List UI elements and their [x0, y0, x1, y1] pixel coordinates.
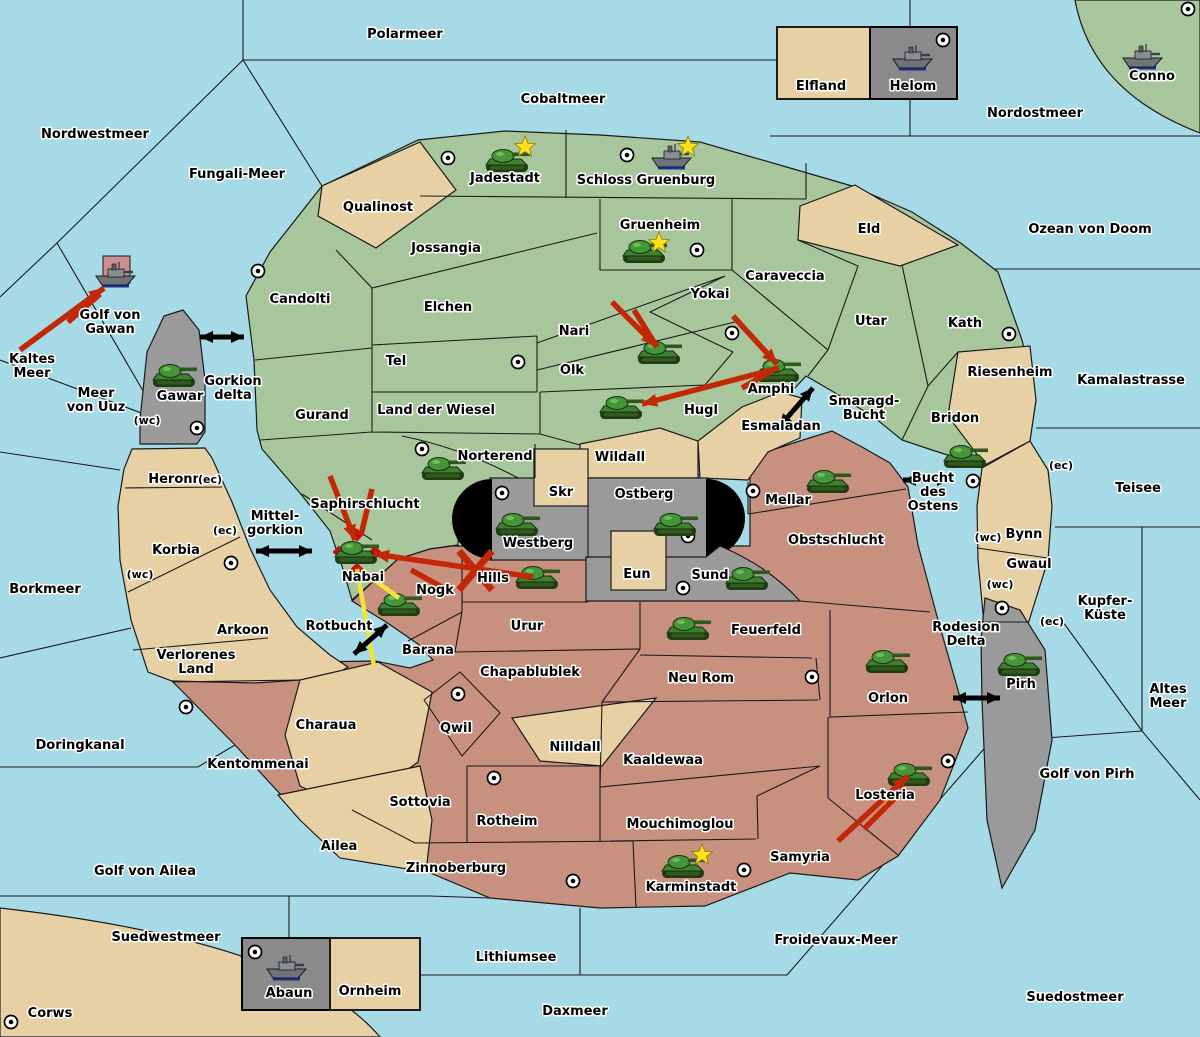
- territory-label-amphi: Amphi: [748, 382, 795, 397]
- sea-label-mittel-gorkion: Mittel-gorkion: [247, 509, 303, 538]
- territory-label-bridon: Bridon: [931, 411, 979, 426]
- territory-label-karminstadt: Karminstadt: [646, 880, 737, 895]
- sea-label-golf-von-ailea: Golf von Ailea: [94, 864, 196, 879]
- territory-label-hugl: Hugl: [684, 403, 718, 418]
- coast-marker-wc-bynn: (wc): [975, 531, 1002, 544]
- territory-label-obstschlucht: Obstschlucht: [788, 533, 884, 548]
- territory-label-orlon: Orlon: [868, 691, 908, 706]
- territory-label-samyria: Samyria: [770, 850, 830, 865]
- territory-label-hills: Hills: [477, 571, 509, 586]
- sea-label-doringkanal: Doringkanal: [35, 738, 124, 753]
- supply-center-yokai: [726, 327, 739, 340]
- territory-label-ostberg: Ostberg: [615, 487, 674, 502]
- sea-label-daxmeer: Daxmeer: [542, 1004, 608, 1019]
- supply-center-schloss-gruenburg: [621, 149, 634, 162]
- coast-marker-ec-bynn: (ec): [1049, 459, 1073, 472]
- territory-label-wildall: Wildall: [595, 450, 645, 465]
- sea-label-borkmeer: Borkmeer: [9, 582, 81, 597]
- territory-label-charaua: Charaua: [296, 718, 357, 733]
- territory-label-gruenheim: Gruenheim: [620, 218, 700, 233]
- sea-label-kamalastrasse: Kamalastrasse: [1077, 373, 1185, 388]
- territory-label-feuerfeld: Feuerfeld: [731, 623, 801, 638]
- territory-label-rotheim: Rotheim: [476, 814, 537, 829]
- territory-label-gwaul: Gwaul: [1006, 557, 1051, 572]
- territory-label-abaun: Abaun: [266, 986, 313, 1001]
- sea-label-cobaltmeer: Cobaltmeer: [521, 92, 606, 107]
- territory-label-conno: Conno: [1129, 69, 1175, 84]
- territory-label-sund: Sund: [691, 568, 728, 583]
- territory-label-nari: Nari: [559, 324, 590, 339]
- game-map: PolarmeerCobaltmeerNordostmeerNordwestme…: [0, 0, 1200, 1037]
- map-canvas: PolarmeerCobaltmeerNordostmeerNordwestme…: [0, 0, 1200, 1037]
- sea-label-froidevaux-meer: Froidevaux-Meer: [774, 933, 898, 948]
- sea-label-rotbucht: Rotbucht: [306, 619, 373, 634]
- sea-label-golf-von-pirh: Golf von Pirh: [1039, 767, 1134, 782]
- sea-label-polarmeer: Polarmeer: [367, 27, 443, 42]
- territory-label-chapablublek: Chapablublek: [480, 665, 580, 680]
- sea-label-kaltes-meer: KaltesMeer: [9, 352, 55, 381]
- territory-label-riesenheim: Riesenheim: [967, 365, 1052, 380]
- territory-label-ailea: Ailea: [321, 839, 358, 854]
- supply-center-abaun: [249, 946, 262, 959]
- supply-center-gruenheim: [691, 244, 704, 257]
- territory-label-sottovia: Sottovia: [389, 795, 450, 810]
- territory-label-kaaldewaa: Kaaldewaa: [623, 753, 703, 768]
- supply-center-sund: [677, 582, 690, 595]
- territory-label-schloss-gruenburg: Schloss Gruenburg: [577, 173, 715, 188]
- coast-marker-ec-gwaul: (ec): [1040, 615, 1064, 628]
- territory-label-kentommenai: Kentommenai: [207, 757, 308, 772]
- territory-label-qwil: Qwil: [440, 721, 472, 736]
- territory-label-kath: Kath: [948, 316, 982, 331]
- supply-center-pirh: [996, 602, 1009, 615]
- sea-label-golf-von-gawan: Golf vonGawan: [80, 308, 141, 337]
- supply-center-mellar: [747, 485, 760, 498]
- territory-label-nilldall: Nilldall: [549, 740, 600, 755]
- supply-center-westberg: [496, 487, 509, 500]
- supply-center-gawar: [191, 422, 204, 435]
- territory-label-jadestadt: Jadestadt: [469, 171, 540, 186]
- supply-center-jadestadt: [442, 152, 455, 165]
- territory-label-nogk: Nogk: [416, 583, 454, 598]
- coast-marker-ec-korbia: (ec): [213, 524, 237, 537]
- territory-label-elchen: Elchen: [424, 300, 472, 315]
- territory-label-candolti: Candolti: [270, 292, 331, 307]
- coast-marker-wc-korbia: (wc): [127, 568, 154, 581]
- supply-center-kath: [1003, 328, 1016, 341]
- supply-center-rotheim: [488, 772, 501, 785]
- supply-center-norterend: [416, 443, 429, 456]
- territory-label-bynn: Bynn: [1006, 527, 1043, 542]
- supply-center-corws: [5, 1016, 18, 1029]
- territory-label-gawar: Gawar: [157, 389, 204, 404]
- territory-label-barana: Barana: [402, 643, 454, 658]
- territory-label-helom: Helom: [890, 79, 937, 94]
- territory-label-gurand: Gurand: [295, 408, 349, 423]
- sea-label-nordostmeer: Nordostmeer: [987, 106, 1084, 121]
- territory-label-heronn: Heronn: [148, 472, 202, 487]
- territory-label-qualinost: Qualinost: [343, 200, 413, 215]
- supply-center-karminstadt: [738, 864, 751, 877]
- sea-label-ozean-von-doom: Ozean von Doom: [1028, 222, 1151, 237]
- supply-center-helom: [937, 34, 950, 47]
- territory-label-land-der-wiesel: Land der Wiesel: [377, 403, 495, 418]
- supply-center-korbia: [225, 557, 238, 570]
- territory-label-westberg: Westberg: [503, 536, 573, 551]
- territory-label-caraveccia: Caraveccia: [745, 269, 824, 284]
- sea-label-nordwestmeer: Nordwestmeer: [41, 127, 149, 142]
- territory-label-mouchimoglou: Mouchimoglou: [627, 817, 734, 832]
- territory-label-corws: Corws: [28, 1006, 73, 1021]
- territory-label-skr: Skr: [549, 485, 574, 500]
- sea-label-suedostmeer: Suedostmeer: [1026, 990, 1124, 1005]
- supply-center-qwil: [452, 688, 465, 701]
- supply-center-zinnoberburg: [567, 875, 580, 888]
- territory-label-tel: Tel: [386, 354, 406, 369]
- territory-label-elfland: Elfland: [796, 79, 846, 94]
- sea-label-teisee: Teisee: [1115, 481, 1161, 496]
- territory-label-norterend: Norterend: [457, 449, 532, 464]
- territory-ornheim-box: [330, 938, 420, 1010]
- sea-label-fungali-meer: Fungali-Meer: [189, 167, 286, 182]
- territory-label-mellar: Mellar: [765, 493, 811, 508]
- territory-label-zinnoberburg: Zinnoberburg: [406, 861, 506, 876]
- territory-label-korbia: Korbia: [152, 543, 200, 558]
- supply-center-kentommenai: [180, 701, 193, 714]
- territory-label-ornheim: Ornheim: [339, 984, 402, 999]
- sea-label-altes-meer: AltesMeer: [1149, 682, 1187, 711]
- territory-label-eld: Eld: [858, 222, 881, 237]
- supply-center-conno: [1182, 3, 1195, 16]
- sea-label-suedwestmeer: Suedwestmeer: [111, 930, 221, 945]
- territory-label-olk: Olk: [560, 363, 585, 378]
- territory-label-urur: Urur: [511, 619, 544, 634]
- territory-label-losteria: Losteria: [855, 788, 915, 803]
- territory-label-yokai: Yokai: [689, 287, 729, 302]
- territory-label-arkoon: Arkoon: [217, 623, 269, 638]
- supply-center-bridon: [967, 475, 980, 488]
- coast-marker-ec-heronn: (ec): [198, 473, 222, 486]
- territory-label-neu-rom: Neu Rom: [668, 671, 734, 686]
- supply-center-neu-rom: [806, 671, 819, 684]
- territory-label-pirh: Pirh: [1006, 677, 1036, 692]
- coast-marker-wc-gwaul: (wc): [987, 578, 1014, 591]
- sea-label-kupfer-kueste: Kupfer-Küste: [1078, 594, 1133, 623]
- supply-center-losteria: [942, 755, 955, 768]
- territory-label-esmaladan: Esmaladan: [741, 419, 821, 434]
- territory-label-saphirschlucht: Saphirschlucht: [310, 497, 419, 512]
- supply-center-tel: [512, 356, 525, 369]
- territory-label-nabai: Nabai: [342, 570, 384, 585]
- supply-center-candolti: [252, 265, 265, 278]
- territory-label-jossangia: Jossangia: [410, 241, 481, 256]
- coast-marker-wc-heronn-n: (wc): [134, 414, 161, 427]
- sea-label-lithiumsee: Lithiumsee: [476, 950, 557, 965]
- territory-label-eun: Eun: [623, 567, 650, 582]
- territory-label-utar: Utar: [855, 314, 888, 329]
